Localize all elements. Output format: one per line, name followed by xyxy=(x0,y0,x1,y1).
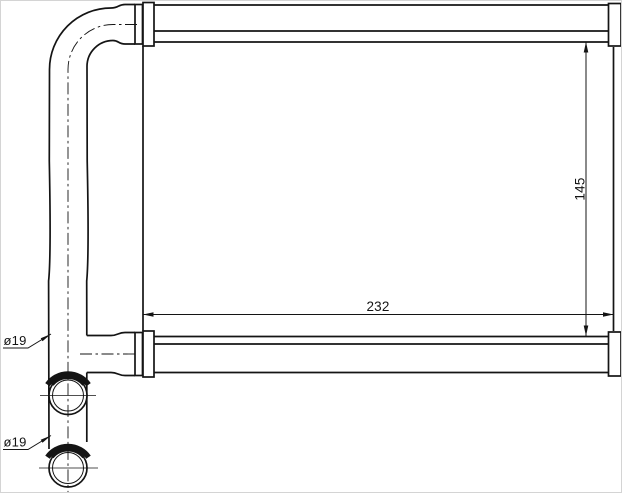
pipe-diameter-value-top: ø19 xyxy=(4,333,27,348)
top-header-tank xyxy=(135,3,621,47)
pipe-diameter-value-bottom: ø19 xyxy=(4,435,27,450)
height-arrow-bottom xyxy=(584,326,589,337)
height-arrow-top xyxy=(584,42,589,53)
core-body xyxy=(143,46,614,331)
top-inlet-flange-body xyxy=(143,3,154,47)
pipe-diameter-label-top: ø19 xyxy=(3,333,51,348)
bottom-outlet-flange-collar xyxy=(135,333,143,376)
inlet-pipe-centerline xyxy=(68,25,137,493)
top-header-end-cap xyxy=(609,4,622,47)
width-dimension-value: 232 xyxy=(366,299,389,314)
bottom-header-tank xyxy=(135,331,621,377)
width-arrow-left xyxy=(143,312,154,317)
bottom-outlet-flange-body xyxy=(143,331,154,377)
core-width-dimension: 232 xyxy=(143,299,614,317)
outlet-pipe-bottom-edge xyxy=(87,373,135,376)
bottom-header-end-cap xyxy=(609,332,622,376)
height-dimension-value: 145 xyxy=(573,177,588,200)
heater-core-technical-drawing: 232 145 ø19 ø19 xyxy=(1,1,622,493)
inlet-pipe-inner-edge xyxy=(87,41,135,336)
drawing-canvas: 232 145 ø19 ø19 xyxy=(0,0,622,493)
core-height-dimension: 145 xyxy=(573,42,589,336)
width-arrow-right xyxy=(603,312,614,317)
pipe-diameter-label-bottom: ø19 xyxy=(3,435,51,450)
outlet-pipe-top-edge xyxy=(87,333,135,336)
